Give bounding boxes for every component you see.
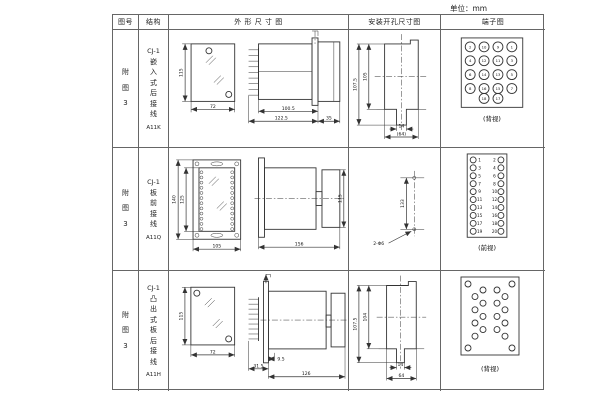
terminal-dot — [200, 176, 203, 179]
terminal-circle — [502, 307, 508, 313]
fig-no-text: 附图3 — [122, 186, 130, 232]
type-code: A11K — [146, 125, 160, 131]
dim-label: 156 — [295, 242, 304, 248]
row3-fig-no: 附图3 — [113, 271, 139, 391]
structure-text: 板前接线 — [150, 188, 158, 230]
terminal-dot — [200, 207, 203, 210]
terminal-dot — [231, 191, 234, 194]
terminal-circle — [498, 189, 504, 195]
dim-label: 140 — [172, 195, 178, 204]
terminal-dot — [200, 217, 203, 220]
dim-label: 104 — [362, 313, 368, 322]
terminal-dot — [231, 197, 234, 200]
dim-label: 107.5 — [352, 317, 358, 330]
terminal-circle — [502, 320, 508, 326]
terminal-number: 18 — [492, 221, 498, 226]
terminal-number: 10 — [492, 189, 498, 194]
direction-flag — [266, 274, 270, 277]
terminal-dot — [200, 222, 203, 225]
row2-structure: CJ-1 板前接线 A11Q — [139, 148, 169, 271]
spec-table: 图号 结构 外 形 尺 寸 图 安装开孔尺寸图 端子图 附图3 CJ-1 嵌入式… — [112, 14, 544, 390]
terminal-circle — [480, 327, 486, 333]
row3-structure: CJ-1 凸出式板后接线 A11H — [139, 271, 169, 391]
terminal-number: 16 — [482, 87, 487, 91]
row1-install-cell: 107.5 105 14 (64) — [349, 30, 441, 148]
terminal-diagram-a11h: (背视) — [441, 271, 545, 391]
terminal-number: 2 — [493, 157, 496, 162]
dim-label: 115 — [178, 312, 184, 321]
dim-label: 125 — [180, 195, 186, 204]
terminal-circle — [470, 181, 476, 187]
terminal-number: 9 — [497, 45, 500, 49]
dim-label: 9.5 — [277, 357, 284, 363]
type-code: A11H — [146, 372, 161, 378]
dim-label: 31.5 — [253, 363, 263, 369]
terminal-grid: 210914121136141358161571817 — [465, 42, 517, 103]
row3-install-cell: 107.5 104 14 64 — [349, 271, 441, 391]
terminal-number: 17 — [477, 221, 483, 226]
corner-hole — [509, 281, 515, 287]
dim-label: 126 — [302, 371, 311, 377]
hatch-marks — [205, 298, 223, 328]
view-caption: (背视) — [481, 364, 499, 373]
dim-label: (64) — [397, 131, 407, 137]
corner-hole — [465, 345, 471, 351]
terminal-circle — [498, 220, 504, 226]
terminal-dot — [231, 202, 234, 205]
dim-label: 100.5 — [282, 106, 295, 112]
dim-label: 35 — [326, 116, 332, 122]
terminal-dot — [231, 181, 234, 184]
terminal-circle — [480, 300, 486, 306]
terminal-number: 11 — [477, 197, 483, 202]
install-cutout-a11k: 107.5 105 14 (64) — [349, 30, 440, 147]
terminal-circle — [470, 197, 476, 203]
terminal-grid — [465, 281, 515, 351]
terminal-circle — [502, 333, 508, 339]
terminal-number: 3 — [478, 165, 481, 170]
terminal-number: 3 — [511, 59, 514, 63]
corner-hole — [465, 281, 471, 287]
terminal-number: 6 — [493, 173, 496, 178]
header-cell-terminal: 端子图 — [441, 15, 545, 30]
terminal-circle — [498, 181, 504, 187]
row1-fig-no: 附图3 — [113, 30, 139, 148]
terminal-diagram-a11k: 210914121136141358161571817 (背视) — [441, 30, 545, 147]
terminal-circle — [498, 197, 504, 203]
terminal-number: 9 — [478, 189, 481, 194]
view-caption: (背视) — [483, 114, 501, 123]
outline-drawing-a11k: 115 72 100.5 122.5 — [169, 30, 348, 147]
model-text: CJ-1 — [147, 284, 160, 292]
dim-label: 105 — [212, 244, 221, 250]
install-holes-a11q: 133 2-Φ6 — [349, 148, 440, 270]
terminal-dot-columns — [200, 171, 234, 231]
cutout-outline — [387, 282, 417, 363]
terminal-number: 15 — [496, 87, 501, 91]
terminal-circle — [502, 294, 508, 300]
terminal-number: 4 — [469, 59, 472, 63]
terminal-number: 11 — [496, 59, 501, 63]
terminal-grid: 1357911131517192468101214161820 — [470, 157, 504, 234]
terminal-dot — [200, 228, 203, 231]
row1-outline-cell: 115 72 100.5 122.5 — [169, 30, 349, 148]
row1-structure: CJ-1 嵌入式后接线 A11K — [139, 30, 169, 148]
terminal-number: 18 — [482, 97, 487, 101]
terminal-number: 5 — [511, 73, 514, 77]
terminal-number: 4 — [493, 165, 496, 170]
pin-comb — [249, 299, 259, 339]
header-cell-outline: 外 形 尺 寸 图 — [169, 15, 349, 30]
dim-label: 105 — [362, 72, 368, 81]
terminal-circle — [472, 333, 478, 339]
terminal-dot — [200, 191, 203, 194]
corner-hole — [509, 345, 515, 351]
hatch-marks — [206, 56, 224, 85]
outline-drawing-a11h: 115 72 31.5 9.5 — [169, 271, 348, 391]
terminal-number: 6 — [469, 73, 472, 77]
terminal-diagram-a11q: 1357911131517192468101214161820 (前视) — [441, 148, 545, 270]
row3-outline-cell: 115 72 31.5 9.5 — [169, 271, 349, 391]
install-cutout-a11h: 107.5 104 14 64 — [349, 271, 440, 391]
row3-terminal-cell: (背视) — [441, 271, 545, 391]
header-cell-fig-no: 图号 — [113, 15, 139, 30]
terminal-circle — [494, 287, 500, 293]
terminal-number: 2 — [469, 45, 472, 49]
hole-spec-label: 2-Φ6 — [373, 241, 384, 247]
unit-label: 单位：mm — [450, 3, 487, 14]
pin-comb — [249, 50, 259, 95]
terminal-dot — [231, 207, 234, 210]
dim-label: 107.5 — [352, 78, 358, 91]
terminal-number: 19 — [477, 229, 483, 234]
terminal-dot — [200, 171, 203, 174]
header-cell-structure: 结构 — [139, 15, 169, 30]
terminal-circle — [494, 313, 500, 319]
terminal-circle — [472, 320, 478, 326]
model-text: CJ-1 — [147, 47, 160, 55]
terminal-number: 5 — [478, 173, 481, 178]
terminal-circle — [470, 157, 476, 163]
terminal-circle — [498, 173, 504, 179]
terminal-number: 8 — [493, 181, 496, 186]
row2-outline-cell: 140 125 105 156 — [169, 148, 349, 271]
terminal-dot — [200, 181, 203, 184]
terminal-circle — [494, 300, 500, 306]
terminal-number: 12 — [482, 59, 487, 63]
terminal-circle — [470, 220, 476, 226]
dim-label: 122.5 — [275, 116, 288, 122]
terminal-number: 16 — [492, 213, 498, 218]
terminal-number: 13 — [496, 73, 501, 77]
terminal-number: 15 — [477, 213, 483, 218]
hatch-marks — [209, 177, 227, 211]
dim-label: 64 — [399, 373, 405, 379]
dim-label: 133 — [400, 199, 406, 208]
terminal-dot — [231, 212, 234, 215]
terminal-circle — [498, 205, 504, 211]
terminal-circle — [470, 212, 476, 218]
terminal-circle — [480, 287, 486, 293]
terminal-number: 1 — [511, 45, 514, 49]
terminal-circle — [480, 313, 486, 319]
terminal-dot — [231, 186, 234, 189]
terminal-dot — [231, 176, 234, 179]
terminal-number: 7 — [478, 181, 481, 186]
terminal-number: 17 — [496, 97, 501, 101]
terminal-number: 14 — [492, 205, 498, 210]
dim-label: 115 — [179, 68, 185, 77]
dim-label: 72 — [210, 349, 216, 355]
dim-label: 72 — [210, 104, 216, 110]
terminal-number: 1 — [478, 157, 481, 162]
manual-page: 单位：mm 图号 结构 外 形 尺 寸 图 安装开孔尺寸图 端子图 附图3 CJ… — [0, 0, 600, 400]
terminal-circle — [470, 189, 476, 195]
terminal-circle — [498, 157, 504, 163]
row2-fig-no: 附图3 — [113, 148, 139, 271]
fig-no-text: 附图3 — [122, 65, 130, 111]
terminal-number: 13 — [477, 205, 483, 210]
terminal-dot — [200, 212, 203, 215]
terminal-circle — [470, 228, 476, 234]
dim-label: 14 — [399, 124, 405, 130]
terminal-circle — [472, 294, 478, 300]
header-cell-install: 安装开孔尺寸图 — [349, 15, 441, 30]
terminal-dot — [200, 186, 203, 189]
terminal-dot — [231, 228, 234, 231]
model-text: CJ-1 — [147, 178, 160, 186]
terminal-circle — [470, 165, 476, 171]
terminal-dot — [231, 217, 234, 220]
terminal-number: 12 — [492, 197, 498, 202]
terminal-circle — [498, 228, 504, 234]
terminal-circle — [470, 173, 476, 179]
dim-label: 115 — [337, 194, 343, 203]
dim-label: 14 — [398, 362, 404, 368]
view-caption: (前视) — [478, 243, 496, 252]
terminal-number: 20 — [492, 229, 498, 234]
terminal-number: 10 — [482, 45, 487, 49]
terminal-dot — [200, 197, 203, 200]
structure-text: 凸出式板后接线 — [150, 294, 158, 368]
terminal-dot — [231, 222, 234, 225]
terminal-dot — [231, 171, 234, 174]
row2-install-cell: 133 2-Φ6 — [349, 148, 441, 271]
terminal-number: 8 — [469, 87, 472, 91]
terminal-circle — [494, 327, 500, 333]
row1-terminal-cell: 210914121136141358161571817 (背视) — [441, 30, 545, 148]
structure-text: 嵌入式后接线 — [150, 57, 158, 120]
type-code: A11Q — [146, 235, 161, 241]
terminal-number: 14 — [482, 73, 487, 77]
terminal-circle — [470, 205, 476, 211]
terminal-circle — [498, 212, 504, 218]
row2-terminal-cell: 1357911131517192468101214161820 (前视) — [441, 148, 545, 271]
terminal-circle — [472, 307, 478, 313]
outline-drawing-a11q: 140 125 105 156 — [169, 148, 348, 270]
fig-no-text: 附图3 — [122, 308, 130, 354]
terminal-dot — [200, 202, 203, 205]
terminal-circle — [498, 165, 504, 171]
terminal-number: 7 — [511, 87, 514, 91]
